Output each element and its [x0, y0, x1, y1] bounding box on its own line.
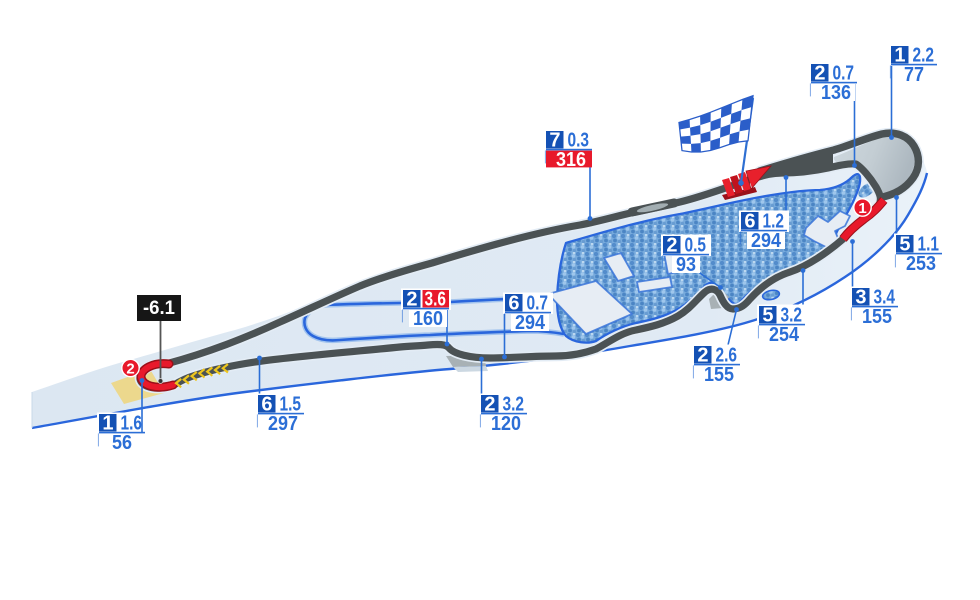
svg-text:294: 294: [515, 312, 546, 334]
svg-text:-6.1: -6.1: [143, 298, 175, 319]
svg-text:120: 120: [491, 413, 521, 435]
svg-text:254: 254: [769, 324, 800, 346]
svg-text:2: 2: [126, 360, 134, 377]
svg-text:155: 155: [862, 306, 892, 328]
svg-text:155: 155: [704, 364, 734, 386]
svg-text:160: 160: [413, 308, 443, 330]
svg-text:1: 1: [858, 200, 866, 217]
svg-text:93: 93: [676, 254, 696, 276]
svg-text:77: 77: [904, 64, 924, 86]
svg-text:136: 136: [821, 82, 851, 104]
svg-text:294: 294: [751, 230, 782, 252]
svg-text:56: 56: [112, 432, 132, 454]
svg-text:253: 253: [906, 253, 936, 275]
svg-text:316: 316: [556, 149, 586, 171]
svg-text:297: 297: [268, 413, 298, 435]
